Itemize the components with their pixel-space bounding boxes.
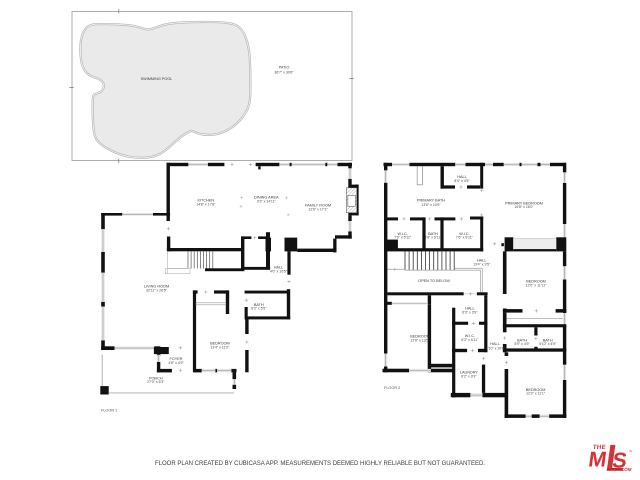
svg-text:6'3" x 6'11": 6'3" x 6'11" xyxy=(461,338,479,342)
svg-text:9'3" x 14'11": 9'3" x 14'11" xyxy=(257,200,277,204)
svg-text:27'0" x 6'3": 27'0" x 6'3" xyxy=(147,380,165,384)
svg-text:14'8" x 17'8": 14'8" x 17'8" xyxy=(196,203,216,207)
svg-text:HALL: HALL xyxy=(490,342,500,346)
svg-text:12'3" x 11'1": 12'3" x 11'1" xyxy=(526,392,546,396)
svg-text:16'8" x 16'0": 16'8" x 16'0" xyxy=(514,205,534,209)
svg-text:6'2" x 9'3": 6'2" x 9'3" xyxy=(461,375,477,379)
svg-text:SWIMMING POOL: SWIMMING POOL xyxy=(141,77,173,81)
svg-text:13'4" x 9'5": 13'4" x 9'5" xyxy=(473,262,491,266)
svg-text:7'9" x 5'11": 7'9" x 5'11" xyxy=(394,236,412,240)
svg-text:PATIO: PATIO xyxy=(279,66,290,70)
svg-text:5'9" x 4'9": 5'9" x 4'9" xyxy=(514,342,530,346)
svg-text:TM: TM xyxy=(628,449,632,453)
svg-text:FLOOR 2: FLOOR 2 xyxy=(384,386,400,390)
svg-text:FLOOR PLAN CREATED BY CUBICASA: FLOOR PLAN CREATED BY CUBICASA APP. MEAS… xyxy=(155,461,485,467)
svg-text:4'8" x 4'9": 4'8" x 4'9" xyxy=(168,361,184,365)
svg-text:6'3" x 3'9": 6'3" x 3'9" xyxy=(462,311,478,315)
svg-text:FLOOR 1: FLOOR 1 xyxy=(101,409,117,413)
svg-text:M: M xyxy=(587,446,608,471)
svg-text:6'3" x 5'5": 6'3" x 5'5" xyxy=(251,307,267,311)
svg-text:12'6" x 13'5": 12'6" x 13'5" xyxy=(410,339,430,343)
svg-text:13'6" x 10'9": 13'6" x 10'9" xyxy=(421,203,441,207)
svg-text:7'10" x 20'6": 7'10" x 20'6" xyxy=(486,347,506,351)
svg-text:13'4" x 11'0": 13'4" x 11'0" xyxy=(210,345,230,349)
svg-text:.COM: .COM xyxy=(619,467,632,472)
svg-text:5'10" x 4'9": 5'10" x 4'9" xyxy=(539,342,557,346)
svg-text:7'6" x 5'11": 7'6" x 5'11" xyxy=(456,236,474,240)
svg-text:12'6" x 17'1": 12'6" x 17'1" xyxy=(308,208,328,212)
svg-text:OPEN TO BELOW: OPEN TO BELOW xyxy=(418,279,450,283)
svg-text:32'11" x 26'5": 32'11" x 26'5" xyxy=(146,288,168,292)
svg-text:4'0" x 10'5": 4'0" x 10'5" xyxy=(270,269,288,273)
svg-text:36'7" x 30'6": 36'7" x 30'6" xyxy=(274,70,294,74)
svg-text:8'0" x 4'5": 8'0" x 4'5" xyxy=(454,179,470,183)
svg-text:4'4" x 5'11": 4'4" x 5'11" xyxy=(425,236,443,240)
svg-text:12'0" x 11'11": 12'0" x 11'11" xyxy=(526,284,547,288)
